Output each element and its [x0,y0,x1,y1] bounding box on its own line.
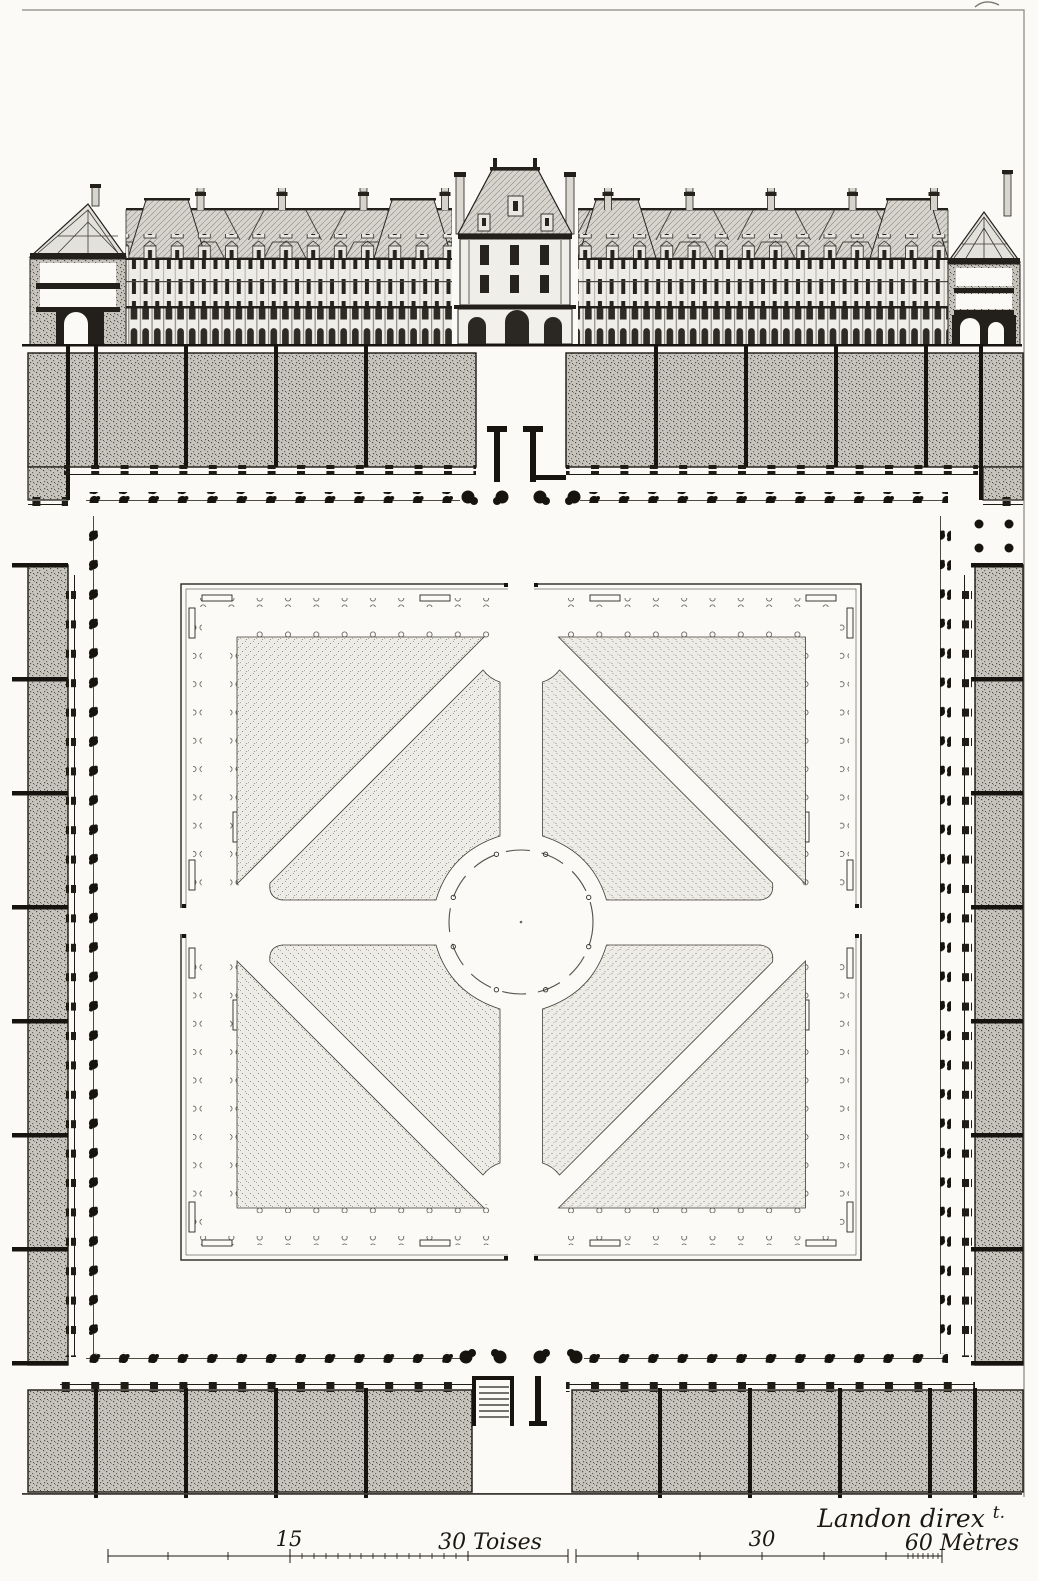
scale-bar-toises: 15 30 Toises [108,1527,568,1563]
scale-toises-mid-label: 15 [276,1527,303,1551]
tree-cluster-south [460,1349,583,1364]
plate-drawing: 15 30 Toises 30 60 Mètres Landon direx t… [0,0,1038,1581]
parterre-nw [237,637,500,900]
parterre-se [543,945,806,1208]
elevation-range-east [578,188,948,344]
scale-metres-mid-label: 30 [749,1527,776,1551]
plan-building-range-east [962,563,1023,1366]
engraving-plate: 15 30 Toises 30 60 Mètres Landon direx t… [0,0,1038,1581]
central-circle [449,850,593,994]
staircase [479,1387,509,1417]
parterre-ne [543,637,806,900]
tree-rows [86,491,1014,1364]
plan-building-range-west [12,563,76,1366]
elevation-ground-line [22,344,1022,347]
engraver-signature-superscript: t. [993,1503,1005,1523]
elevation-section-east [948,170,1020,345]
elevation-drawing [22,158,1022,347]
engraver-signature-text: Landon direx [816,1504,985,1533]
parterre-sw [237,945,500,1208]
elevation-section-west [30,184,126,345]
elevation-central-pavilion [452,158,578,344]
tree-cluster-north [462,491,581,506]
plan-building-range-south [22,1382,1023,1498]
engraver-signature: Landon direx t. [816,1503,1005,1533]
plate-corner-mark [975,2,999,7]
plan-drawing [12,346,1023,1498]
tree-cluster-northeast-corner [975,520,1014,553]
pavilion-passage-north [487,426,566,482]
scale-toises-end-label: 30 Toises [438,1530,542,1555]
scale-metres-end-label: 60 Mètres [905,1531,1019,1556]
garden-enclosure [177,580,865,1264]
elevation-range-west [126,188,452,344]
pavilion-passage-south [472,1376,547,1426]
